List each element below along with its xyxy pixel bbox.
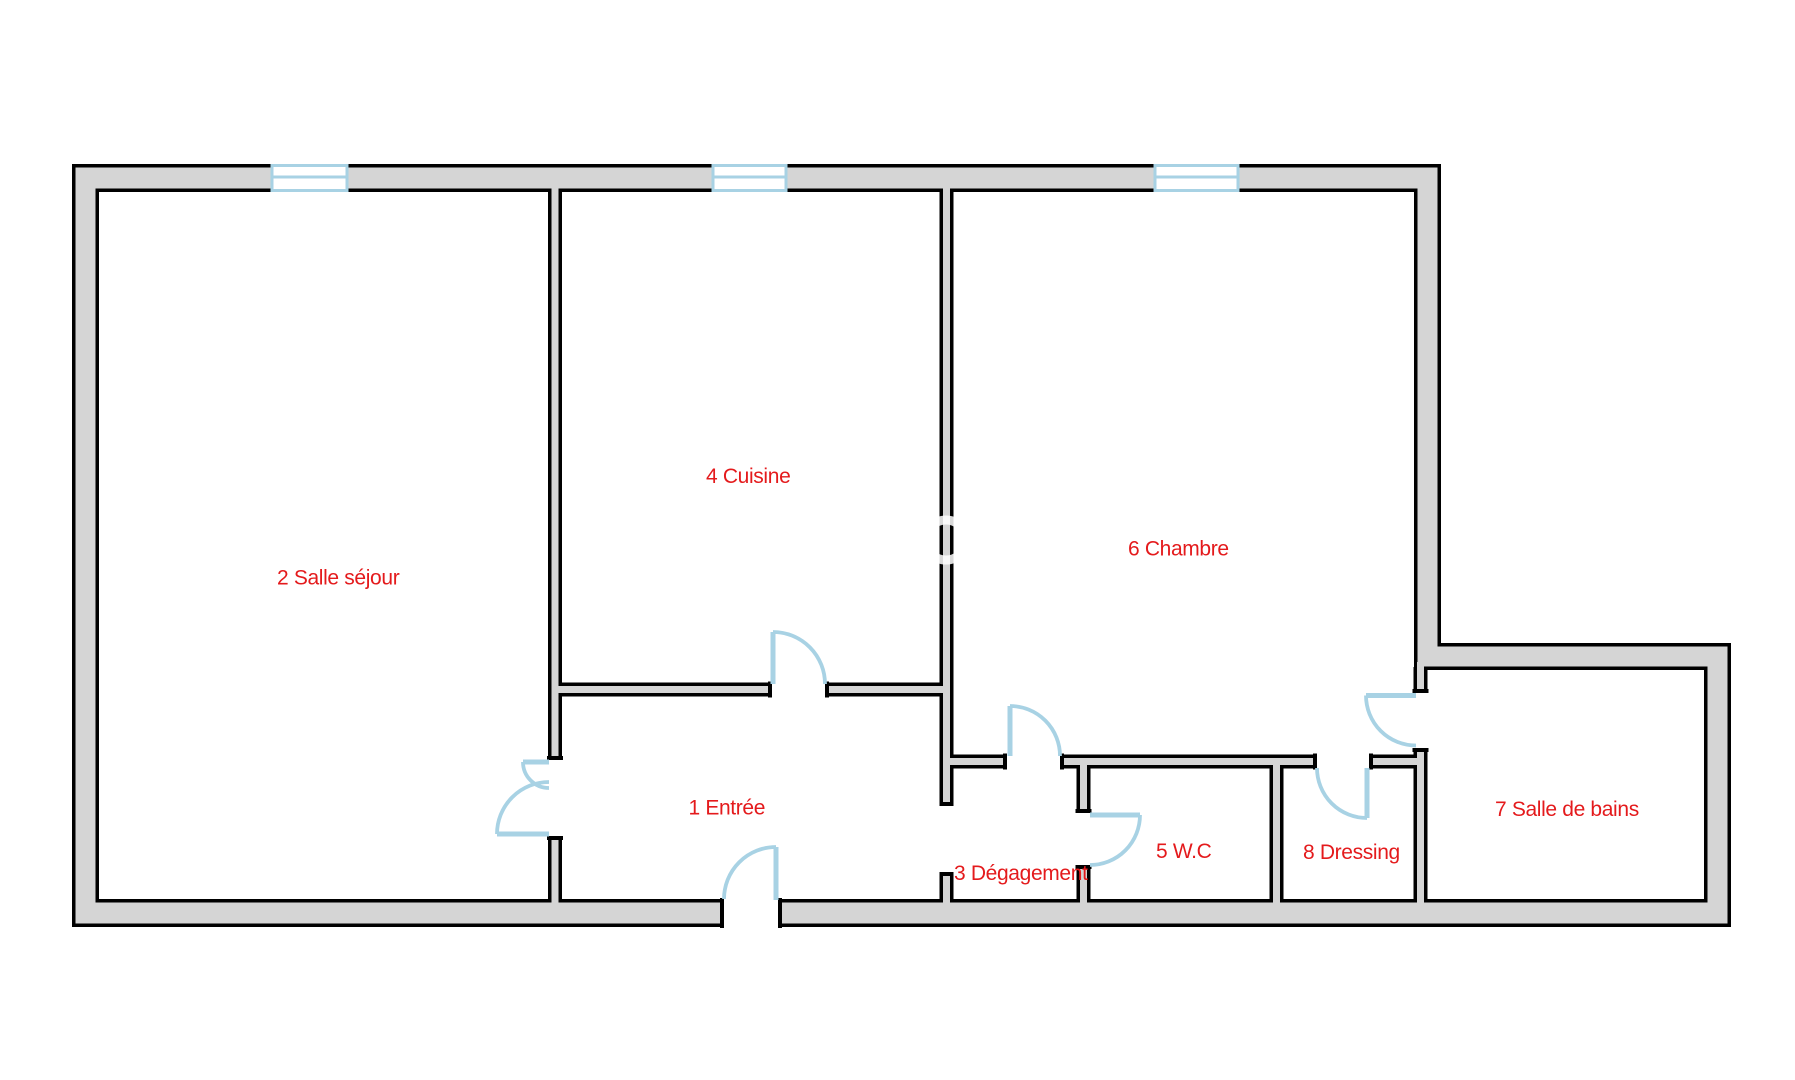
svg-text:5 W.C: 5 W.C — [1156, 840, 1212, 863]
svg-text:8 Dressing: 8 Dressing — [1303, 841, 1400, 864]
svg-text:4 Cuisine: 4 Cuisine — [706, 465, 790, 488]
svg-text:2 Salle séjour: 2 Salle séjour — [277, 567, 400, 590]
svg-text:1 Entrée: 1 Entrée — [689, 797, 766, 820]
svg-text:6 Chambre: 6 Chambre — [1128, 538, 1229, 561]
svg-text:7 Salle de bains: 7 Salle de bains — [1495, 798, 1639, 821]
svg-text:3 Dégagement: 3 Dégagement — [954, 862, 1088, 885]
